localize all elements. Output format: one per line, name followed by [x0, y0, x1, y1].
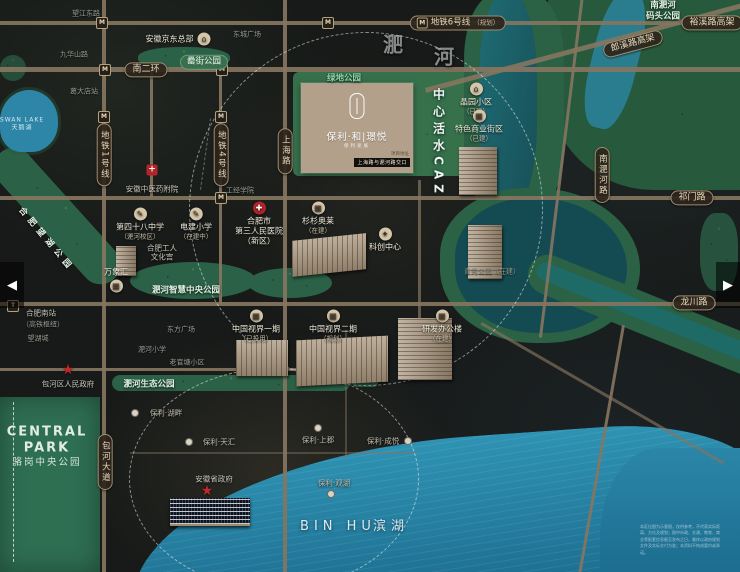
poly-dot — [327, 490, 335, 498]
caz-label: 中心活水CAZ — [431, 88, 446, 198]
project-address-caption: 项目地址 — [391, 151, 409, 157]
poi-china-vision-2: ▦中国视界二期（规划） — [309, 309, 357, 342]
poi-no3-hospital-label: 合肥市 第三人民医院 （新区） — [235, 217, 283, 247]
project-subtitle: 保利发展 — [301, 143, 413, 149]
poi-china-vision-1: ▦中国视界一期（已投用） — [232, 309, 280, 342]
project-plot: 保利·和|璟悦 保利发展 项目地址 上海路与淝河路交口 — [301, 83, 413, 173]
poi-rd-office: ▦研发办公楼（在建） — [422, 309, 462, 342]
poly-dot — [404, 437, 412, 445]
poi-school-48-sub: （淝河校区） — [116, 232, 164, 240]
carousel-prev-button[interactable]: ◀ — [0, 262, 24, 308]
poi-rd-office-sub: （在建） — [422, 334, 462, 342]
poly-dot — [185, 438, 193, 446]
poi-shanshan-outlets-label: 杉杉奥莱（在建） — [302, 216, 334, 234]
park-matou: 南淝河 码头公园 — [646, 0, 680, 21]
poi-jd-hq-label: 安徽京东总部 — [146, 34, 194, 44]
poi-china-vision-2-sub: （规划） — [309, 334, 357, 342]
metro-icon: M — [417, 18, 428, 29]
park-feihe-eco: 淝河生态公园 — [123, 380, 174, 391]
poi-feihe-school: 淝河小学 — [138, 346, 166, 355]
poi-kechuang-center: ✦科创中心 — [369, 228, 401, 253]
poi-no3-hospital: ✚合肥市 第三人民医院 （新区） — [235, 202, 283, 247]
poi-jingyuan-icon: ⌂ — [470, 82, 483, 95]
poi-hefei-south-sub: （高铁枢纽） — [22, 321, 64, 330]
poi-shanshan-outlets: ▦杉杉奥莱（在建） — [302, 201, 334, 234]
metro-line6-sub: （规划） — [473, 19, 499, 27]
metro-station-icon: M — [96, 17, 108, 29]
poi-dianjian-school-sub: （在建中） — [180, 232, 213, 240]
road-v-west1 — [150, 68, 153, 198]
metro-station-icon: M — [99, 64, 111, 76]
road-shanghai: 上海路 — [278, 128, 293, 174]
binhu-label-cn: 滨湖 — [373, 519, 409, 535]
swan-lake-label: SWAN LAKE 天鹅湖 — [0, 117, 44, 132]
poi-hefei-south-station: 合肥南站 — [26, 308, 56, 317]
poi-rd-office-label: 研发办公楼（在建） — [422, 324, 462, 342]
poi-kechuang-center-icon: ✦ — [379, 228, 392, 241]
park-feihe-smart: 淝河智慧中央公园 — [152, 286, 220, 297]
poi-school-48-icon: ✎ — [134, 207, 147, 220]
radius-ring-south — [129, 368, 419, 572]
metro-line1: 地铁1号线 — [97, 123, 112, 186]
poi-wanxianghui-label: 万象汇 — [104, 268, 128, 278]
road-jiuhuashan: 九华山路 — [60, 51, 88, 60]
poly-dot — [314, 424, 322, 432]
poi-dianjian-school-label: 电建小学（在建中） — [180, 222, 213, 240]
poi-rd-office-icon: ▦ — [436, 309, 449, 322]
poi-kechuang-center-label: 科创中心 — [369, 243, 401, 253]
location-map: 保利·和|璟悦 保利发展 项目地址 上海路与淝河路交口 望江东路MMMMM南二环… — [0, 0, 740, 572]
project-address-bar: 上海路与淝河路交口 — [354, 158, 410, 167]
central-park-panel — [0, 397, 100, 572]
hospital-cross-icon: + — [147, 165, 158, 176]
poi-wanxianghui-icon: ▦ — [110, 280, 123, 293]
poi-poly-tianhui: 保利·天汇 — [203, 437, 235, 446]
poi-china-vision-1-icon: ▦ — [250, 309, 263, 322]
binhu-label-en: BIN HU — [300, 519, 376, 535]
poi-workers-palace: 合肥工人 文化宫 — [147, 244, 177, 263]
poi-baohe-gov: 包河区人民政府 — [42, 379, 95, 388]
poi-tese-street: ▦特色商业街区（已建） — [455, 109, 503, 142]
poi-wanxianghui: ▦万象汇 — [104, 268, 128, 293]
central-park-cn: 骆岗中央公园 — [12, 457, 81, 469]
project-emblem-icon — [350, 93, 365, 119]
road-longchuan: 龙川路 — [672, 295, 715, 310]
poi-gongjing-college: 工经学院 — [226, 187, 254, 196]
metro-line4: 地铁4号线 — [214, 123, 229, 186]
road-qimen: 祁门路 — [670, 190, 713, 205]
road-nanerhuan: 南二环 — [124, 62, 167, 77]
park-lvdi: 绿地公园 — [327, 74, 361, 85]
poi-dongcheng-plaza: 东城广场 — [233, 31, 261, 40]
building-china-vision-b — [296, 336, 388, 387]
river-char-he: 河 — [434, 45, 454, 70]
metro-line6-label: 地铁6号线 — [431, 18, 470, 29]
river-char-fei: 淝 — [383, 33, 403, 58]
poi-poly-hupan: 保利·湖畔 — [150, 408, 182, 417]
province-gov-star: ★ — [201, 484, 214, 498]
carousel-next-button[interactable]: ▶ — [716, 262, 740, 308]
road-yuxi-elevated: 裕溪路高架 — [681, 15, 740, 30]
poi-poly-guanhu: 保利·观湖 — [318, 478, 350, 487]
poi-laoguantang: 老官塘小区 — [170, 359, 205, 368]
project-name: 保利·和|璟悦 — [301, 129, 413, 143]
poly-dot — [131, 409, 139, 417]
poi-china-vision-1-sub: （已投用） — [232, 334, 280, 342]
poi-tese-street-icon: ▦ — [473, 109, 486, 122]
poi-qingxiu-park: 青秀公园（在建） — [464, 268, 520, 277]
chevron-left-icon: ◀ — [7, 278, 17, 293]
poi-shanshan-outlets-icon: ▦ — [312, 201, 325, 214]
building-towers-east1 — [459, 147, 497, 195]
poi-tese-street-sub: （已建） — [455, 134, 503, 142]
poi-dianjian-school: ✎电建小学（在建中） — [180, 207, 213, 240]
road-baohe-ave: 包河大道 — [98, 434, 113, 490]
metro-station-icon: M — [215, 111, 227, 123]
poi-wanghucheng: 望湖城 — [28, 335, 49, 344]
poi-dianjian-school-icon: ✎ — [190, 207, 203, 220]
map-disclaimer: 本区位图为示意图，仅供参考，不代表实际距离、方位及规划；图中市政、交通、教育、商… — [640, 524, 720, 556]
poi-jd-hq: 安徽京东总部⌂ — [146, 33, 211, 46]
poi-shanshan-outlets-sub: （在建） — [302, 226, 334, 234]
metro-line6: M地铁6号线（规划） — [410, 16, 506, 31]
road-nanfeihe: 南淝河路 — [595, 147, 610, 203]
poi-poly-shangjun: 保利·上郡 — [302, 435, 334, 444]
poi-dongfang-plaza: 东方广场 — [167, 326, 195, 335]
building-province-gov — [170, 498, 250, 526]
poi-poly-chengyue: 保利·成悦 — [367, 436, 399, 445]
road-h-wangjiang — [0, 21, 740, 25]
park-leijie: 罍街公园 — [180, 55, 228, 70]
poi-jd-hq-icon: ⌂ — [198, 33, 211, 46]
poi-no3-hospital-icon: ✚ — [253, 202, 266, 215]
poi-school-48: ✎第四十八中学（淝河校区） — [116, 207, 164, 240]
building-china-vision-a — [236, 340, 288, 376]
baohe-gov-star: ★ — [62, 363, 75, 377]
metro-station-icon: M — [98, 111, 110, 123]
chevron-right-icon: ▶ — [723, 278, 733, 293]
poi-gedadian: 葛大店站 — [70, 88, 98, 97]
poi-china-vision-2-label: 中国视界二期（规划） — [309, 324, 357, 342]
poi-china-vision-2-icon: ▦ — [327, 309, 340, 322]
metro-station-icon: M — [322, 17, 334, 29]
central-park-en: CENTRAL PARK — [7, 424, 88, 455]
poi-school-48-label: 第四十八中学（淝河校区） — [116, 222, 164, 240]
poi-china-vision-1-label: 中国视界一期（已投用） — [232, 324, 280, 342]
poi-tese-street-label: 特色商业街区（已建） — [455, 124, 503, 142]
poi-zhongyi-hospital: 安徽中医药附院 — [126, 184, 179, 193]
